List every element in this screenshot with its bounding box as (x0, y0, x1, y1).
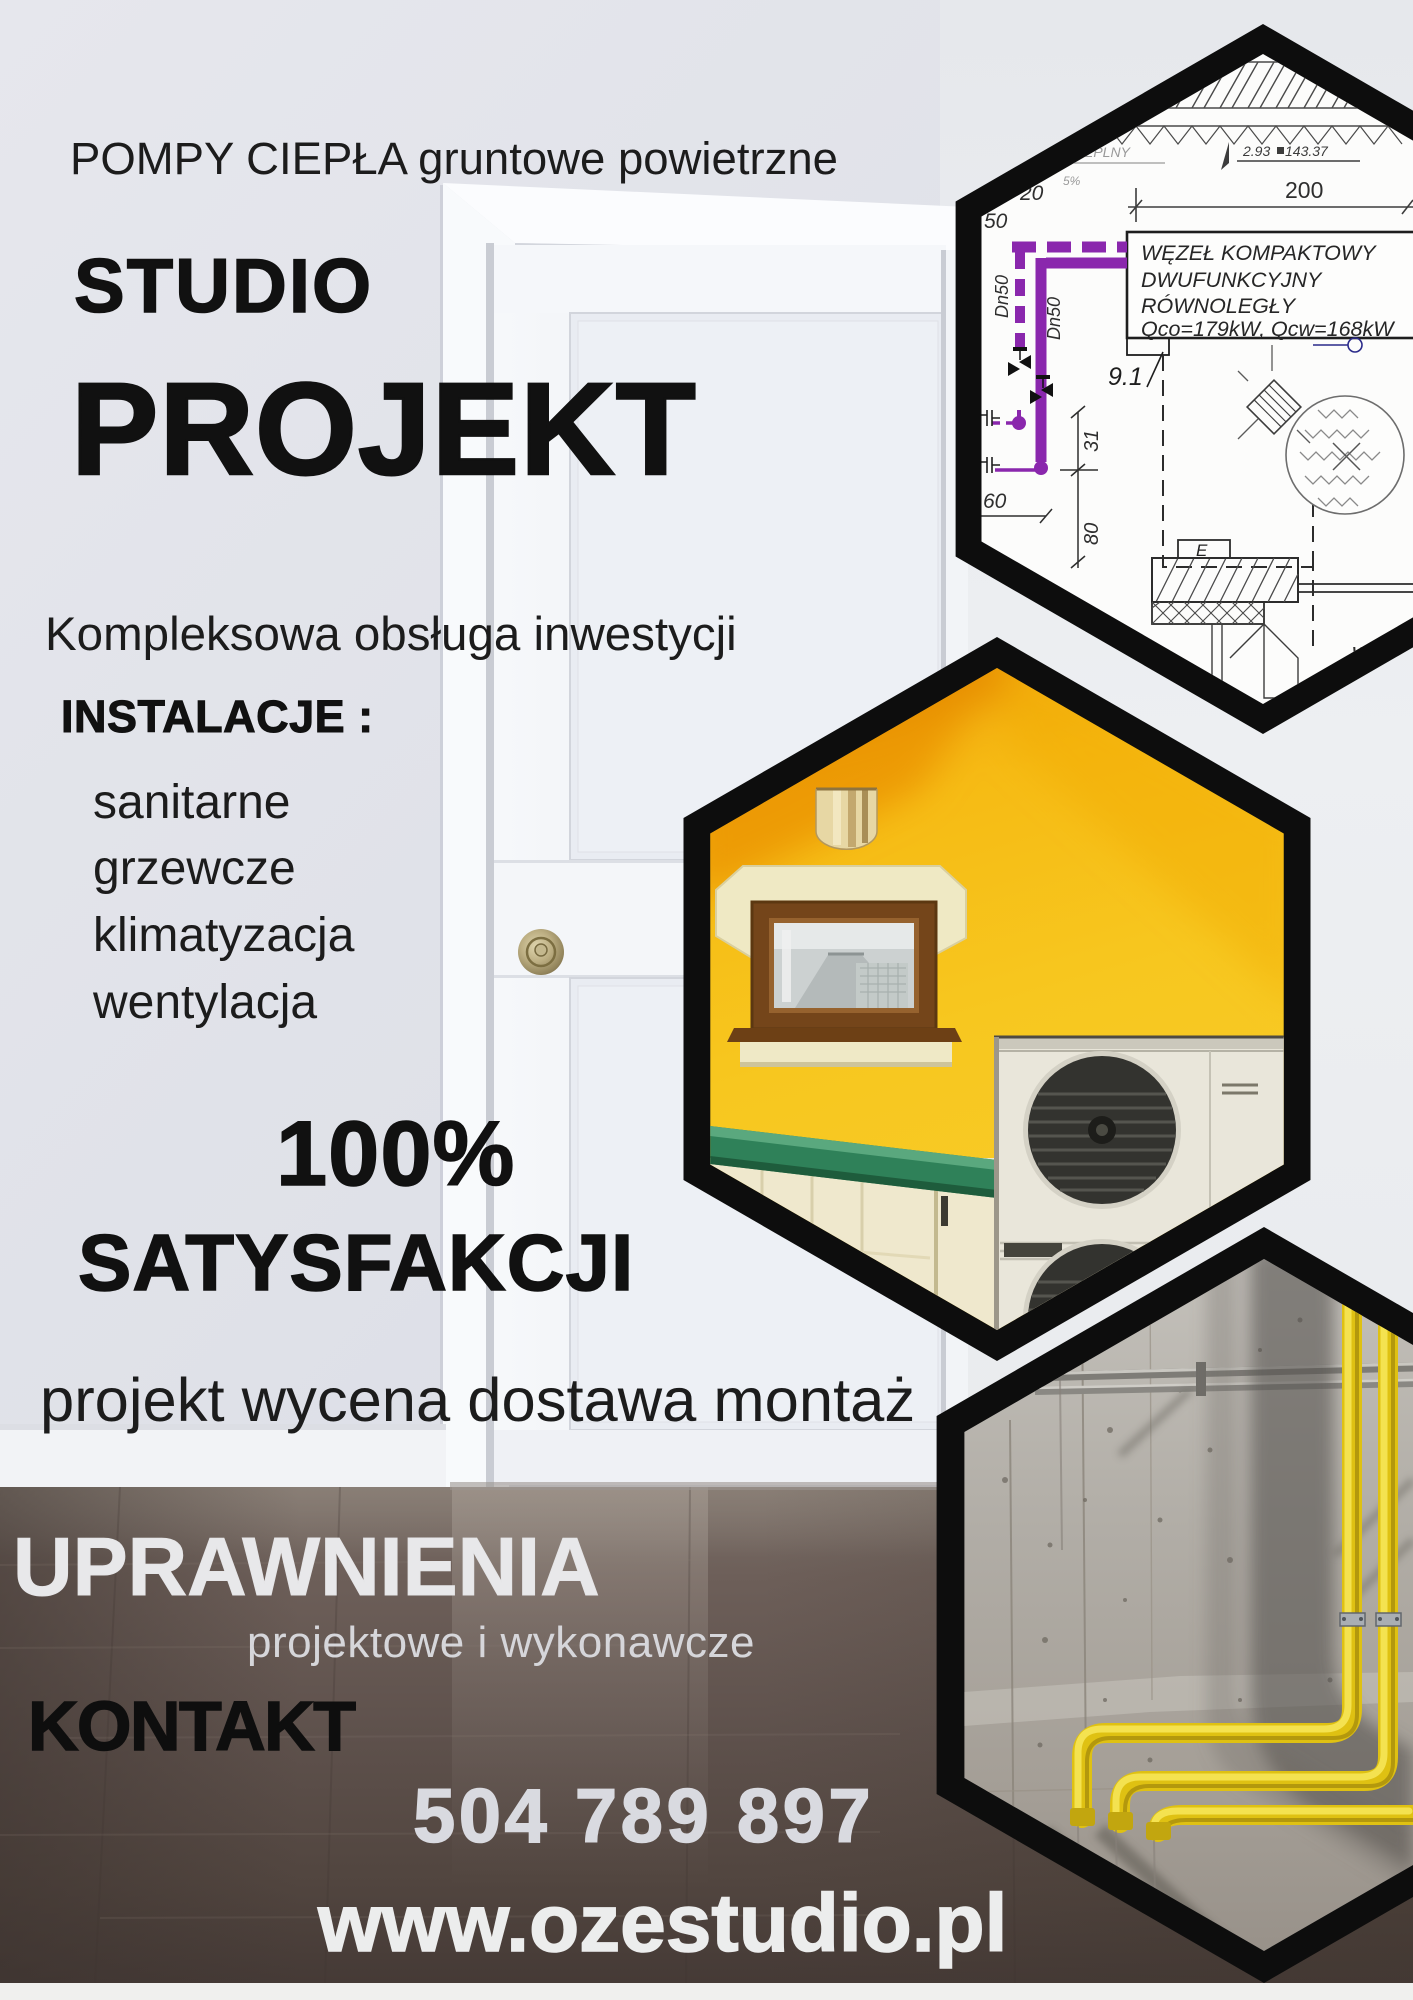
svg-text:KONTAKT: KONTAKT (28, 1687, 355, 1765)
svg-text:9.1: 9.1 (1108, 363, 1143, 391)
svg-text:STUDIO: STUDIO (74, 244, 373, 329)
svg-text:klimatyzacja: klimatyzacja (93, 909, 355, 962)
svg-text:projekt wycena dostawa montaż: projekt wycena dostawa montaż (40, 1366, 915, 1435)
svg-text:Qco=179kW, Qcw=168kW: Qco=179kW, Qcw=168kW (1141, 317, 1395, 341)
svg-text:80: 80 (1081, 523, 1103, 545)
svg-text:INSTALACJE :: INSTALACJE : (61, 691, 374, 742)
svg-text:100%: 100% (276, 1103, 515, 1205)
svg-text:Kompleksowa obsługa inwestycji: Kompleksowa obsługa inwestycji (45, 608, 737, 661)
svg-text:504 789 897: 504 789 897 (413, 1774, 874, 1859)
svg-text:5%: 5% (1063, 174, 1081, 188)
svg-text:31: 31 (1081, 430, 1103, 452)
svg-text:50: 50 (984, 210, 1008, 233)
svg-text:SATYSFAKCJI: SATYSFAKCJI (78, 1218, 634, 1307)
svg-text:POMPY CIEPŁA gruntowe powietrz: POMPY CIEPŁA gruntowe powietrzne (70, 133, 838, 184)
svg-text:E: E (1196, 541, 1208, 560)
svg-text:wentylacja: wentylacja (92, 976, 317, 1029)
svg-text:2.93: 2.93 (1242, 143, 1270, 159)
svg-text:Dn50: Dn50 (1044, 297, 1064, 340)
svg-text:UPRAWNIENIA: UPRAWNIENIA (13, 1521, 600, 1613)
svg-text:WĘZEŁ KOMPAKTOWY: WĘZEŁ KOMPAKTOWY (1141, 241, 1377, 265)
svg-text:DWUFUNKCYJNY: DWUFUNKCYJNY (1141, 268, 1323, 292)
svg-text:sanitarne: sanitarne (93, 776, 290, 829)
svg-text:projektowe i wykonawcze: projektowe i wykonawcze (247, 1618, 755, 1667)
svg-text:RÓWNOLEGŁY: RÓWNOLEGŁY (1141, 293, 1297, 318)
svg-text:200: 200 (1285, 177, 1323, 203)
svg-text:PROJEKT: PROJEKT (71, 355, 697, 502)
svg-text:143.37: 143.37 (1285, 143, 1329, 159)
svg-text:grzewcze: grzewcze (93, 842, 296, 895)
svg-text:Dn50: Dn50 (992, 275, 1012, 318)
svg-text:60: 60 (983, 490, 1007, 513)
svg-text:www.ozestudio.pl: www.ozestudio.pl (317, 1878, 1007, 1969)
